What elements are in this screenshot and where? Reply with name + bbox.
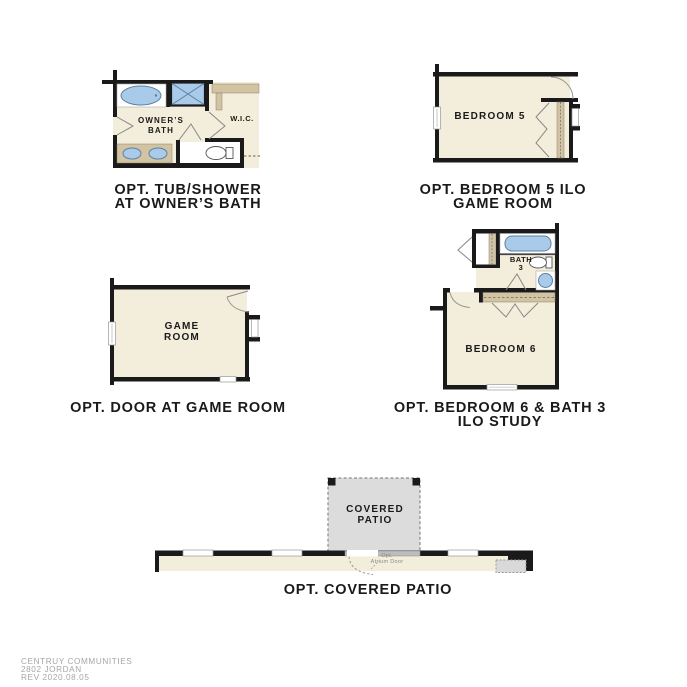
caption-owners-bath: OPT. TUB/SHOWER AT OWNER’S BATH: [114, 184, 261, 211]
game-room-label-line2: ROOM: [164, 333, 200, 344]
bedroom5-label: BEDROOM 5: [454, 112, 525, 123]
covered-patio-label-line2: PATIO: [346, 516, 404, 527]
toilet: [206, 147, 233, 160]
owners-bath-label-line1: OWNER’S: [138, 116, 184, 126]
tub-faucet: [155, 94, 157, 96]
bath3-label: BATH 3: [510, 256, 532, 271]
caption-bedroom6-bath3: OPT. BEDROOM 6 & BATH 3 ILO STUDY: [394, 402, 606, 429]
window: [448, 550, 478, 556]
floorplan-options-sheet: OWNER’S BATH W.I.C. BEDROOM 5 GAME ROOM …: [0, 0, 687, 687]
window: [183, 550, 213, 556]
plan-bedroom6-bath3: [430, 223, 559, 390]
patio-post: [413, 478, 421, 486]
caption-bedroom5-line2: GAME ROOM: [420, 198, 587, 212]
window: [220, 377, 236, 383]
window: [272, 550, 302, 556]
shower: [171, 83, 205, 106]
caption-game-room: OPT. DOOR AT GAME ROOM: [70, 402, 286, 416]
wic-wall-strip: [216, 93, 222, 110]
window: [572, 109, 579, 127]
patio-post: [328, 478, 336, 486]
bedroom6-label: BEDROOM 6: [465, 345, 536, 356]
plan-covered-patio: [155, 478, 533, 575]
vanity: [117, 144, 172, 163]
sink: [539, 274, 553, 288]
caption-bedroom5: OPT. BEDROOM 5 ILO GAME ROOM: [420, 184, 587, 211]
atrium-door-label: Opt. Atrium Door: [371, 554, 404, 566]
revision-date: REV 2020.08.05: [21, 674, 132, 682]
optional-feature-dashed: [496, 560, 526, 573]
game-room-label-line1: GAME: [164, 322, 200, 333]
covered-patio-label: COVERED PATIO: [346, 505, 404, 526]
title-block: CENTRUY COMMUNITIES 2802 JORDAN REV 2020…: [21, 658, 132, 681]
caption-owners-bath-line2: AT OWNER’S BATH: [114, 198, 261, 212]
owners-bath-label: OWNER’S BATH: [138, 116, 184, 135]
sink: [123, 148, 141, 159]
bathtub: [505, 236, 551, 251]
sink: [149, 148, 167, 159]
covered-patio-label-line1: COVERED: [346, 505, 404, 516]
toilet: [530, 257, 553, 268]
game-room-label: GAME ROOM: [164, 322, 200, 343]
door-swing: [458, 237, 472, 262]
bath3-label-line2: 3: [510, 264, 532, 272]
atrium-door-label-line2: Atrium Door: [371, 560, 404, 566]
caption-covered-patio: OPT. COVERED PATIO: [284, 584, 453, 598]
wic-wall-band: [212, 84, 259, 93]
caption-bedroom6-bath3-line2: ILO STUDY: [394, 416, 606, 430]
wic-label: W.I.C.: [230, 115, 253, 123]
window: [252, 320, 259, 338]
owners-bath-label-line2: BATH: [138, 126, 184, 136]
